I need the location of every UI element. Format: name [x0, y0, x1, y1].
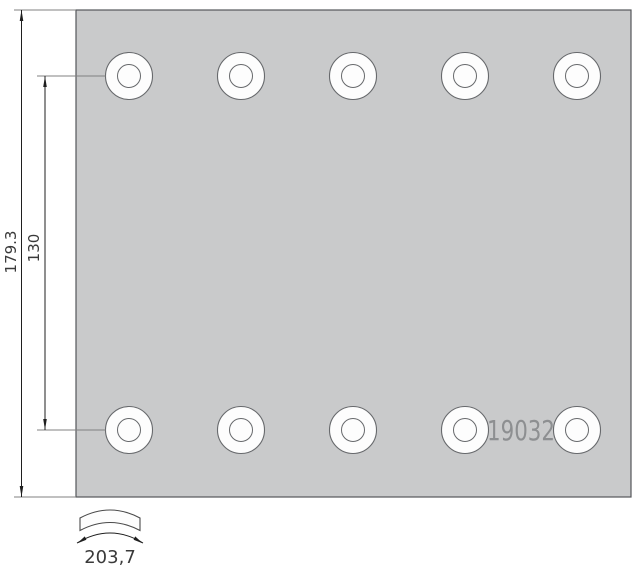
curved-lining-section [80, 510, 140, 531]
rivet-hole-counterbore [106, 53, 153, 100]
arrowhead-up-icon [20, 10, 24, 21]
dimension-label-hole-spacing: 130 [25, 234, 43, 263]
part-number-label: 19032 [487, 414, 555, 447]
rivet-hole [554, 53, 601, 100]
section-view-curved-profile: 203,7 [77, 510, 143, 566]
rivet-hole-counterbore [330, 53, 377, 100]
rivet-hole [442, 407, 489, 454]
dimension-label-overall-height: 179.3 [2, 231, 20, 274]
rivet-hole-counterbore [554, 53, 601, 100]
rivet-hole [106, 53, 153, 100]
arrowhead-right-icon [134, 536, 143, 543]
rivet-hole [330, 407, 377, 454]
rivet-hole [106, 407, 153, 454]
arrowhead-down-icon [20, 486, 24, 497]
arc-dimension-line [77, 533, 143, 543]
technical-drawing-canvas: 19032 179.3 130 203,7 [0, 0, 640, 566]
rivet-hole [442, 53, 489, 100]
arrowhead-down-icon [43, 419, 47, 430]
rivet-hole-counterbore [218, 53, 265, 100]
rivet-hole-counterbore [554, 407, 601, 454]
rivet-hole [218, 407, 265, 454]
arrowhead-up-icon [43, 76, 47, 87]
rivet-hole [330, 53, 377, 100]
dimension-label-arc-length: 203,7 [84, 547, 136, 566]
rivet-hole-counterbore [442, 407, 489, 454]
rivet-hole-counterbore [218, 407, 265, 454]
rivet-hole-counterbore [330, 407, 377, 454]
rivet-hole-counterbore [442, 53, 489, 100]
rivet-hole [554, 407, 601, 454]
rivet-hole-counterbore [106, 407, 153, 454]
arrowhead-left-icon [77, 536, 86, 543]
rivet-hole [218, 53, 265, 100]
brake-lining-drawing: 19032 179.3 130 203,7 [0, 0, 640, 566]
